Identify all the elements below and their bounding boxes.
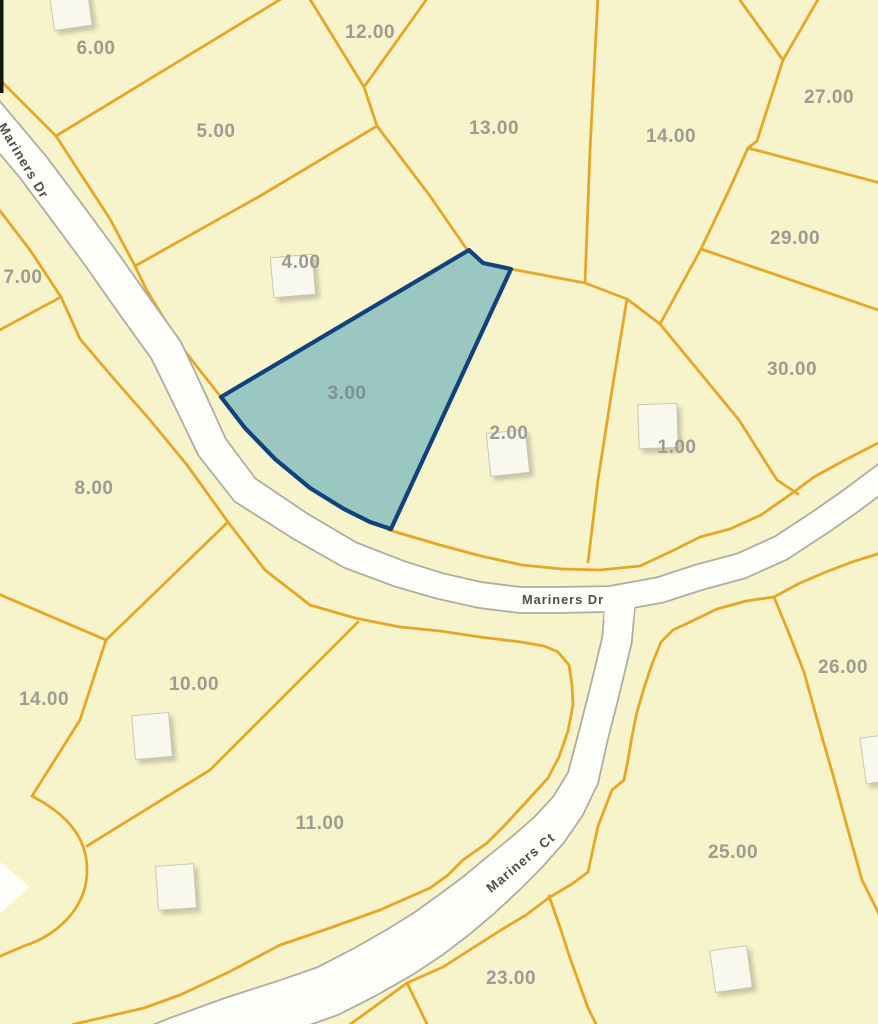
svg-text:6.00: 6.00: [77, 38, 116, 59]
svg-text:2.00: 2.00: [490, 423, 529, 444]
svg-text:Mariners Dr: Mariners Dr: [522, 592, 604, 607]
svg-text:10.00: 10.00: [169, 674, 219, 695]
svg-text:3.00: 3.00: [328, 383, 367, 404]
svg-text:12.00: 12.00: [345, 22, 395, 43]
svg-text:11.00: 11.00: [296, 813, 345, 834]
svg-text:13.00: 13.00: [469, 118, 519, 139]
svg-text:5.00: 5.00: [197, 121, 236, 142]
svg-text:7.00: 7.00: [4, 267, 43, 288]
svg-text:14.00: 14.00: [19, 689, 69, 710]
svg-text:29.00: 29.00: [770, 228, 820, 249]
svg-text:4.00: 4.00: [282, 252, 321, 273]
svg-text:25.00: 25.00: [708, 842, 758, 863]
svg-text:14.00: 14.00: [646, 126, 696, 147]
svg-text:23.00: 23.00: [486, 968, 536, 989]
svg-text:30.00: 30.00: [767, 359, 817, 380]
svg-text:26.00: 26.00: [818, 657, 868, 678]
svg-text:8.00: 8.00: [75, 478, 114, 499]
svg-text:1.00: 1.00: [658, 437, 697, 458]
svg-text:27.00: 27.00: [804, 87, 854, 108]
